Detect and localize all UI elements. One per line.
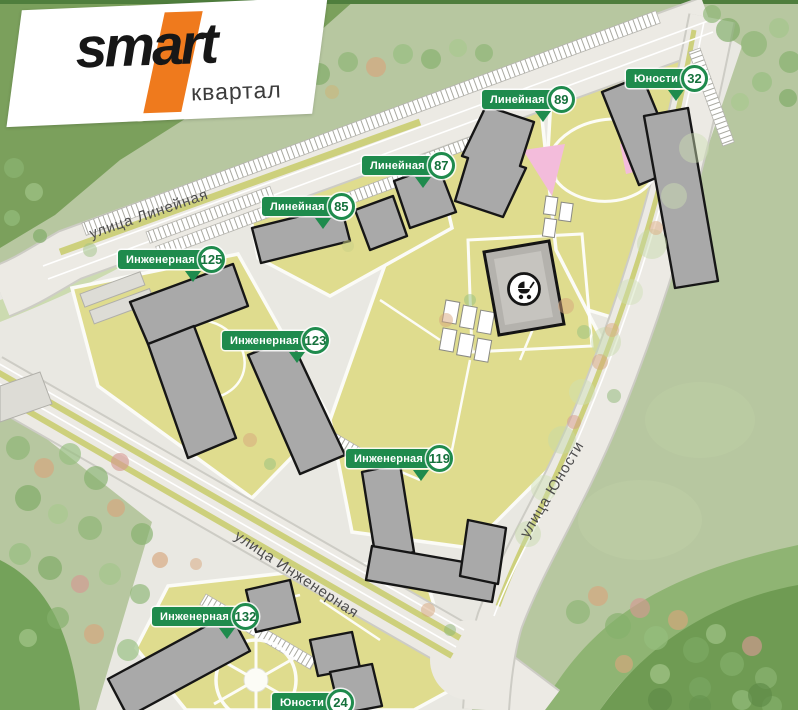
marker-lineynaya-87[interactable]: Линейная 87 (362, 152, 455, 179)
marker-tail (289, 352, 305, 363)
map-canvas: улица Линейная улица Инженерная улица Юн… (0, 0, 798, 710)
stroller-icon (509, 274, 540, 305)
marker-street-label: Линейная (262, 197, 334, 216)
marker-number: 85 (328, 193, 355, 220)
marker-number: 125 (198, 246, 225, 273)
marker-inzhenernaya-132[interactable]: Инженерная 132 (152, 603, 259, 630)
marker-street-label: Инженерная (222, 331, 308, 350)
logo-sub-text: квартал (191, 76, 282, 106)
marker-street-label: Юности (626, 69, 687, 88)
brand-logo: smart квартал (14, 4, 320, 120)
marker-yunosti-24[interactable]: Юности 24 (272, 689, 354, 710)
marker-tail (415, 177, 431, 188)
marker-number: 87 (428, 152, 455, 179)
marker-lineynaya-89[interactable]: Линейная 89 (482, 86, 575, 113)
marker-number: 89 (548, 86, 575, 113)
marker-inzhenernaya-123[interactable]: Инженерная 123 (222, 327, 329, 354)
marker-lineynaya-85[interactable]: Линейная 85 (262, 193, 355, 220)
kindergarten-building (484, 241, 564, 335)
marker-tail (413, 470, 429, 481)
marker-number: 123 (302, 327, 329, 354)
logo-brand-text: smart (74, 11, 216, 82)
marker-tail (185, 271, 201, 282)
marker-street-label: Линейная (362, 156, 434, 175)
marker-street-label: Инженерная (118, 250, 204, 269)
marker-tail (219, 628, 235, 639)
marker-street-label: Юности (272, 693, 333, 710)
marker-tail (668, 90, 684, 101)
marker-street-label: Инженерная (346, 449, 432, 468)
marker-number: 132 (232, 603, 259, 630)
marker-tail (535, 111, 551, 122)
marker-yunosti-32[interactable]: Юности 32 (626, 65, 708, 92)
marker-street-label: Линейная (482, 90, 554, 109)
marker-inzhenernaya-119[interactable]: Инженерная 119 (346, 445, 453, 472)
marker-inzhenernaya-125[interactable]: Инженерная 125 (118, 246, 225, 273)
marker-number: 24 (327, 689, 354, 710)
marker-number: 119 (426, 445, 453, 472)
marker-tail (315, 218, 331, 229)
marker-street-label: Инженерная (152, 607, 238, 626)
marker-number: 32 (681, 65, 708, 92)
